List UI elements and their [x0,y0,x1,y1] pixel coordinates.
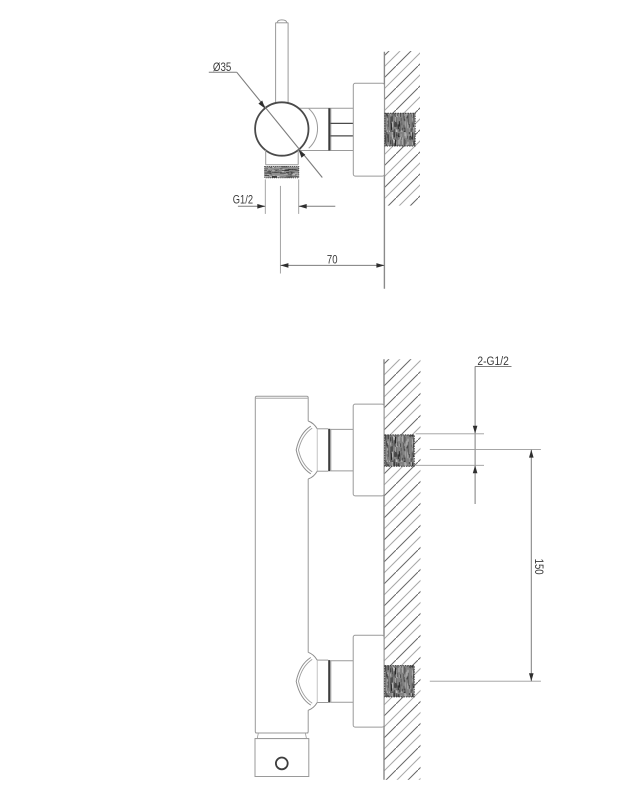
svg-text:Ø35: Ø35 [213,60,232,74]
svg-text:150: 150 [532,559,544,575]
svg-text:70: 70 [327,253,338,267]
svg-text:G1/2: G1/2 [233,193,253,207]
